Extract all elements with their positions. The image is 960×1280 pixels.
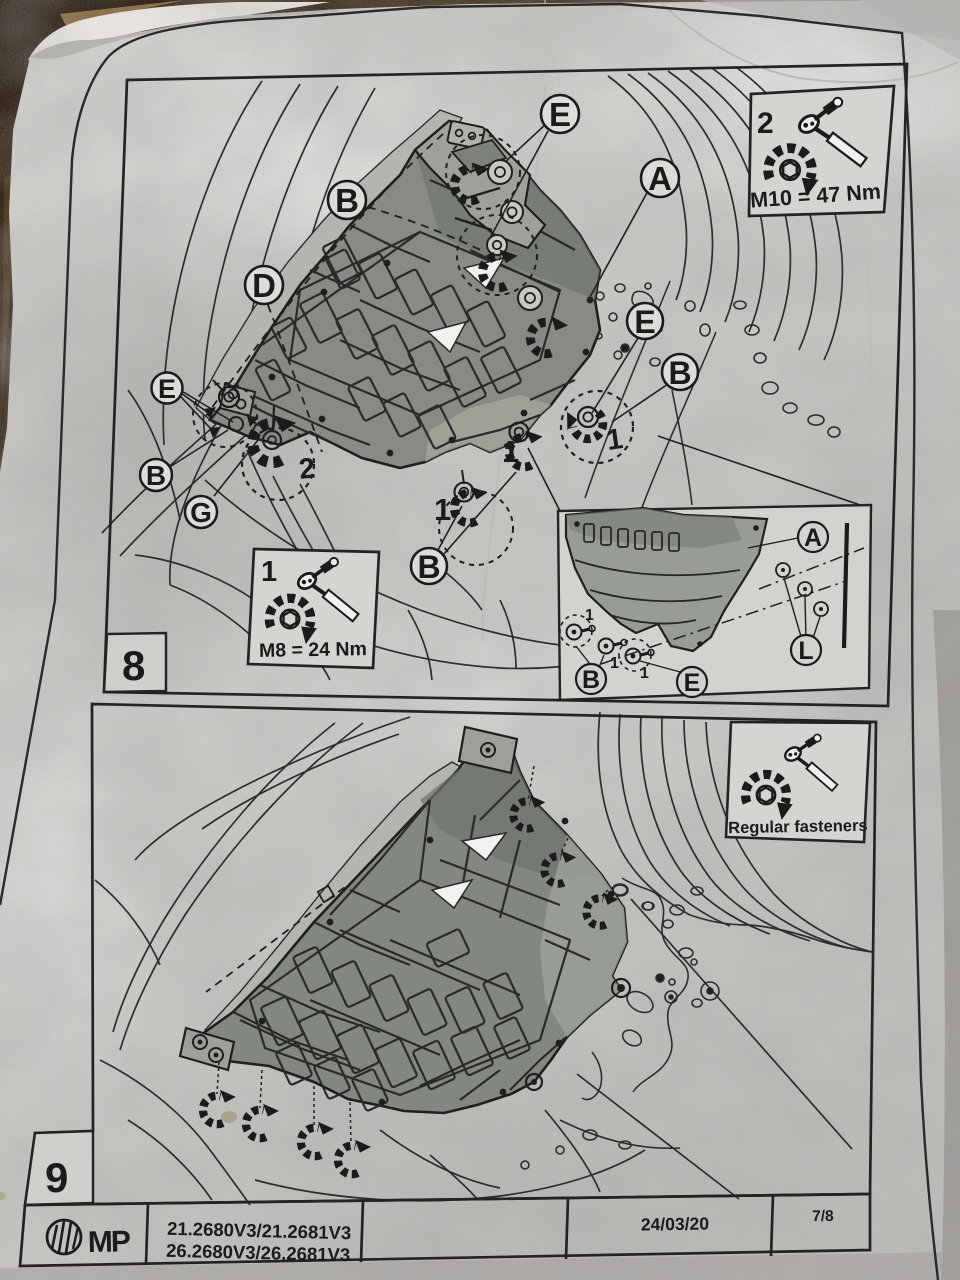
svg-text:1: 1 — [434, 492, 451, 527]
svg-text:1: 1 — [640, 665, 649, 682]
svg-text:2: 2 — [757, 107, 774, 140]
svg-text:9: 9 — [45, 1154, 68, 1201]
svg-text:E: E — [634, 304, 655, 340]
svg-text:E: E — [684, 669, 701, 697]
svg-text:7/8: 7/8 — [812, 1208, 834, 1225]
svg-text:24/03/20: 24/03/20 — [641, 1214, 710, 1235]
svg-text:E: E — [158, 374, 176, 404]
svg-text:L: L — [798, 637, 813, 665]
svg-text:B: B — [668, 355, 691, 391]
svg-text:A: A — [648, 160, 672, 197]
svg-text:A: A — [804, 524, 822, 552]
svg-text:1: 1 — [585, 607, 594, 624]
svg-text:B: B — [335, 182, 359, 219]
svg-text:B: B — [417, 549, 440, 585]
svg-text:1: 1 — [610, 655, 619, 672]
svg-text:M8 = 24 Nm: M8 = 24 Nm — [259, 638, 367, 662]
svg-text:1: 1 — [261, 556, 277, 588]
svg-text:2: 2 — [297, 452, 316, 486]
svg-text:B: B — [582, 666, 600, 694]
svg-text:Regular fasteners: Regular fasteners — [728, 817, 868, 837]
svg-text:D: D — [252, 267, 276, 304]
svg-text:G: G — [190, 497, 212, 528]
svg-text:8: 8 — [122, 642, 145, 689]
svg-text:E: E — [549, 96, 571, 133]
svg-text:26.2680V3/26.2681V3: 26.2680V3/26.2681V3 — [166, 1240, 351, 1265]
svg-text:21.2680V3/21.2681V3: 21.2680V3/21.2681V3 — [167, 1218, 352, 1243]
svg-text:1: 1 — [502, 434, 519, 469]
svg-text:B: B — [146, 460, 166, 491]
svg-text:MP: MP — [88, 1225, 131, 1259]
